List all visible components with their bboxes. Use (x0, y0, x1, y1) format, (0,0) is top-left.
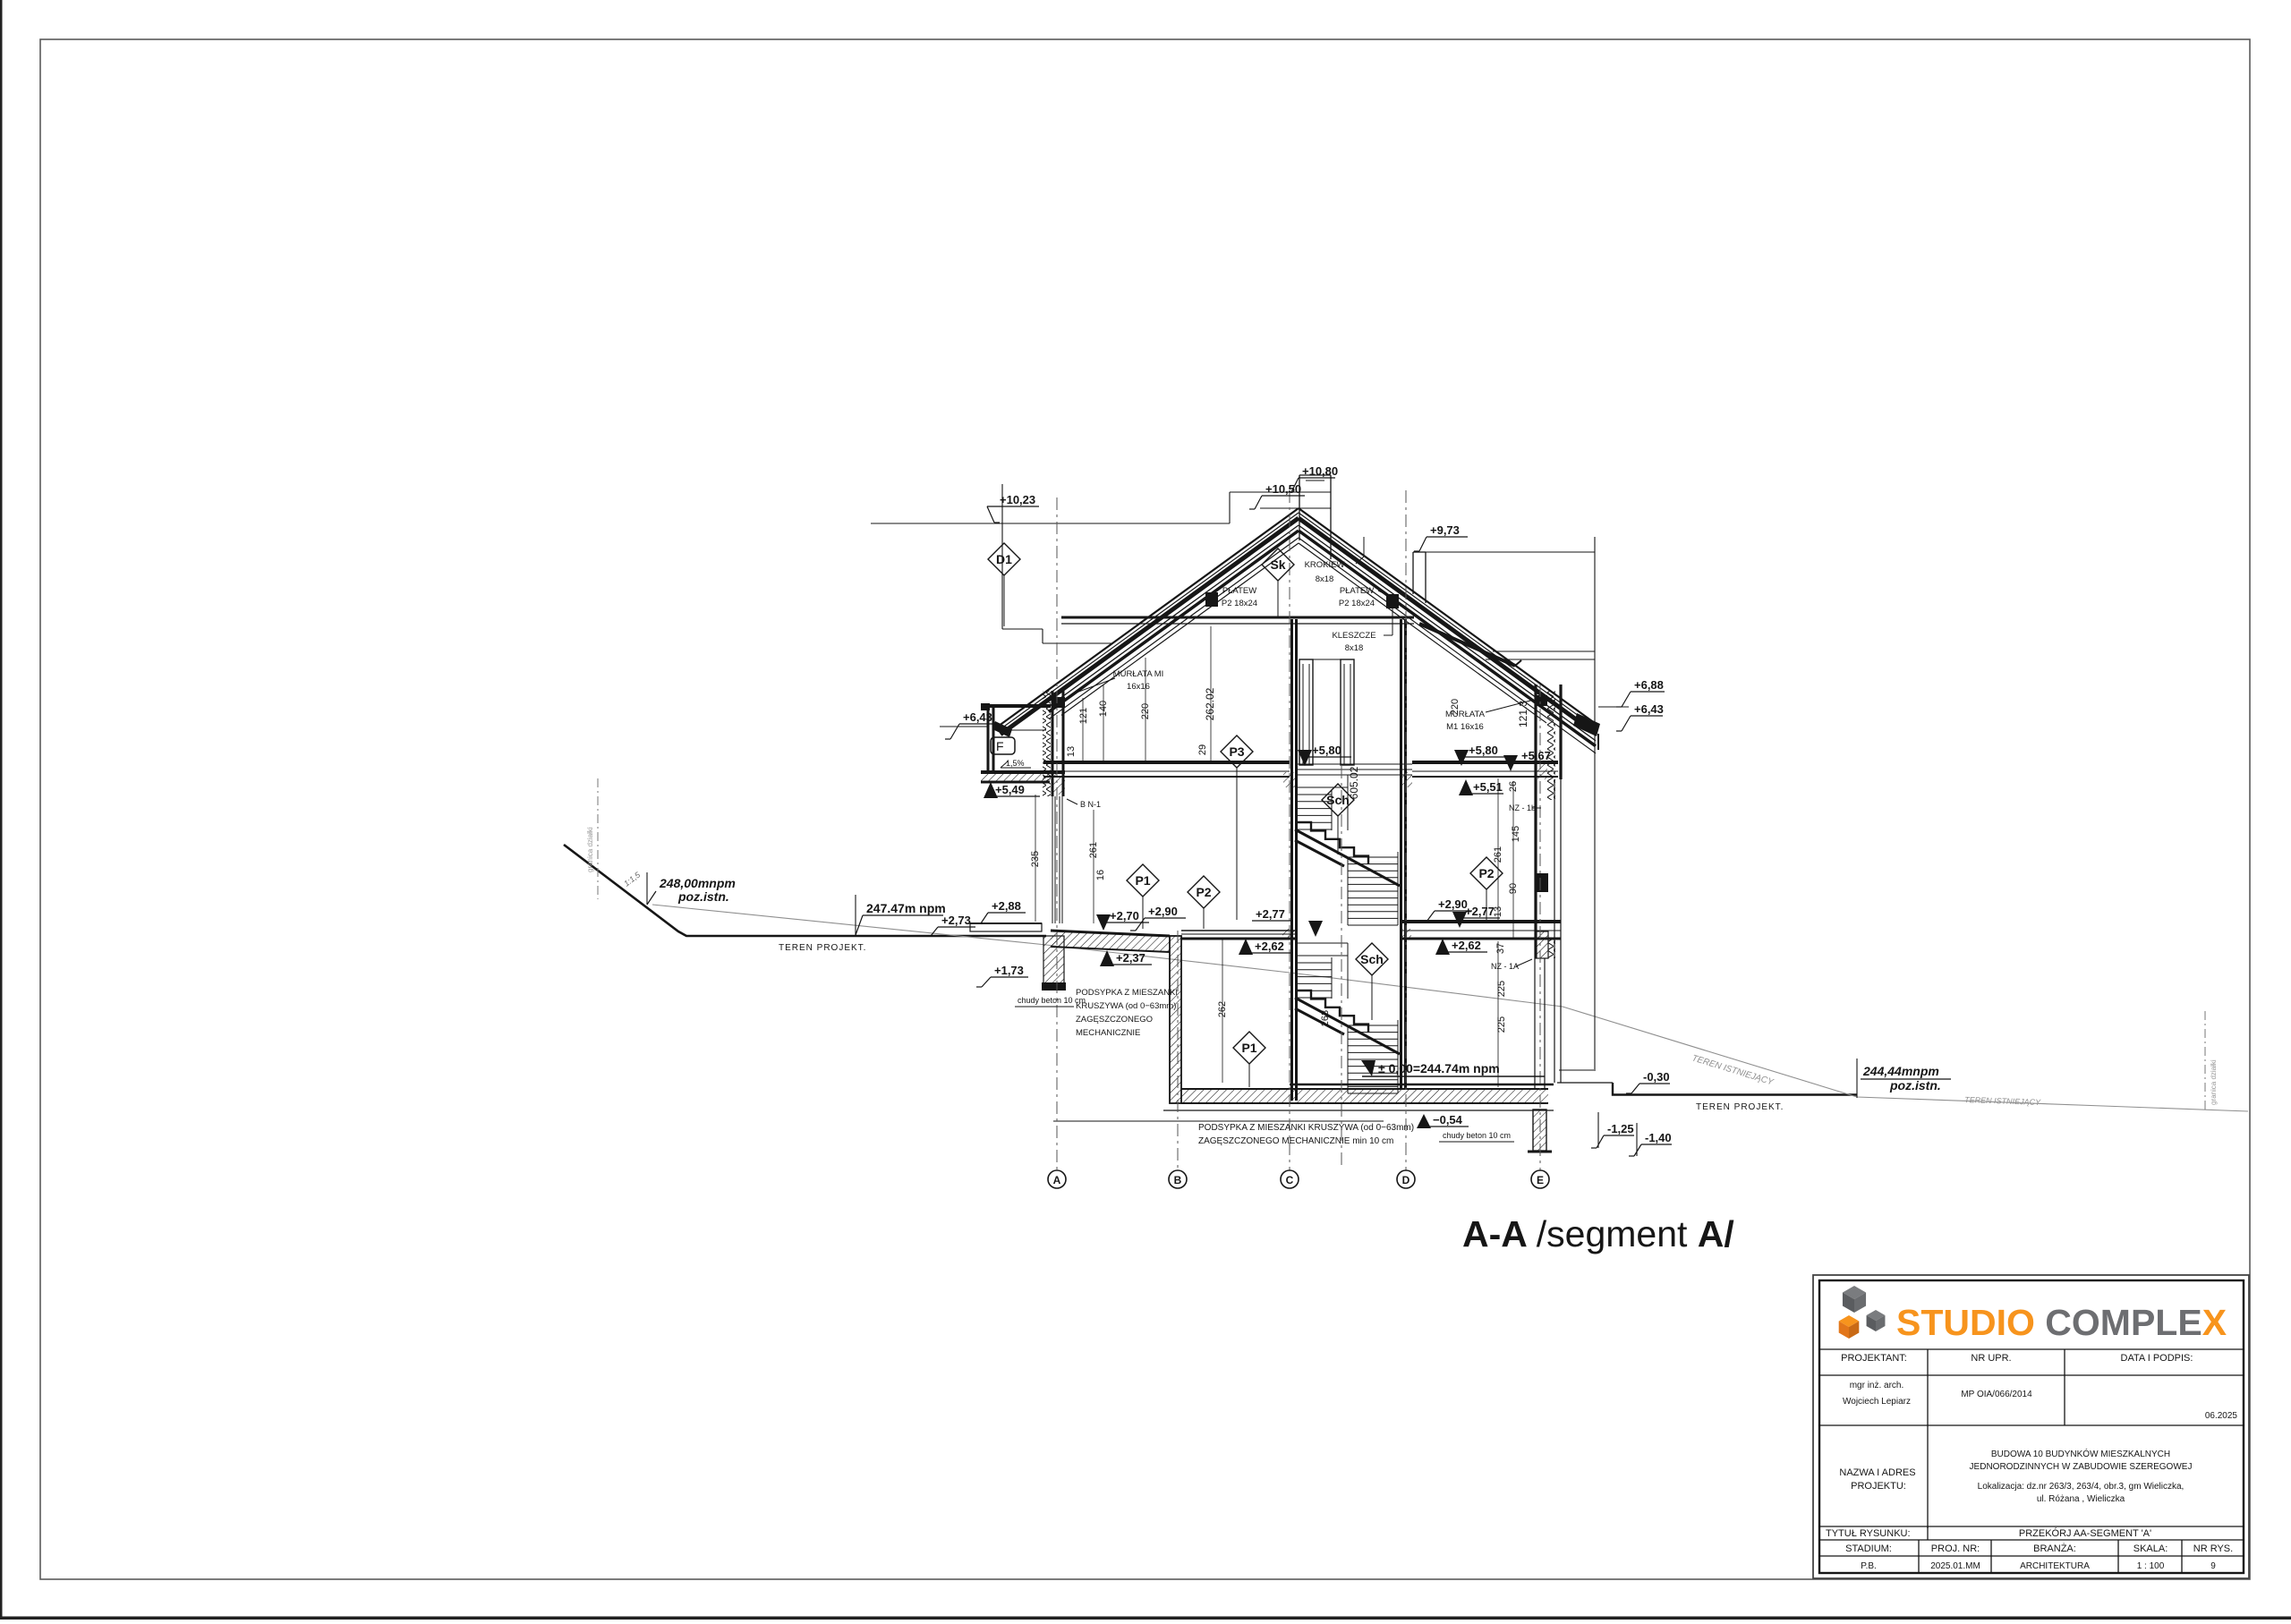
svg-text:ZAGĘSZCZONEGO MECHANICZNIE min: ZAGĘSZCZONEGO MECHANICZNIE min 10 cm (1198, 1136, 1393, 1146)
svg-text:NAZWA I ADRES: NAZWA I ADRES (1839, 1467, 1915, 1478)
svg-text:Sch: Sch (1326, 793, 1350, 807)
svg-text:+2,90: +2,90 (1148, 905, 1178, 918)
svg-text:P2: P2 (1196, 885, 1211, 899)
svg-text:MECHANICZNIE: MECHANICZNIE (1076, 1028, 1140, 1038)
svg-text:+2,77: +2,77 (1256, 907, 1285, 921)
svg-text:+2,73: +2,73 (941, 914, 971, 927)
svg-text:-1,25: -1,25 (1607, 1122, 1634, 1135)
svg-text:244,44mnpm: 244,44mnpm (1862, 1064, 1939, 1078)
svg-text:+5,67: +5,67 (1521, 749, 1551, 762)
svg-text:PŁATEW: PŁATEW (1222, 586, 1256, 596)
svg-text:-1,40: -1,40 (1645, 1131, 1672, 1144)
svg-text:121: 121 (1078, 708, 1089, 724)
svg-text:± 0,00=244.74m npm: ± 0,00=244.74m npm (1378, 1061, 1500, 1076)
svg-text:13: 13 (1066, 746, 1077, 757)
svg-text:P2 18x24: P2 18x24 (1339, 599, 1375, 608)
svg-text:145: 145 (1511, 826, 1521, 842)
svg-text:P.B.: P.B. (1861, 1561, 1877, 1571)
svg-text:−0,54: −0,54 (1433, 1113, 1463, 1127)
svg-text:P2 18x24: P2 18x24 (1222, 599, 1257, 608)
svg-text:P3: P3 (1229, 744, 1244, 759)
svg-text:A: A (1053, 1174, 1061, 1186)
svg-text:JEDNORODZINNYCH W ZABUDOWIE SZ: JEDNORODZINNYCH W ZABUDOWIE SZEREGOWEJ (1970, 1462, 2193, 1472)
svg-text:+2,70: +2,70 (1110, 909, 1139, 923)
svg-text:8x18: 8x18 (1345, 643, 1364, 653)
svg-text:ARCHITEKTURA: ARCHITEKTURA (2020, 1561, 2090, 1571)
svg-text:+6,43: +6,43 (1634, 702, 1664, 716)
svg-text:P1: P1 (1241, 1041, 1256, 1055)
svg-text:PŁATEW: PŁATEW (1340, 586, 1374, 596)
svg-text:PODSYPKA Z MIESZANKI KRUSZYWA: PODSYPKA Z MIESZANKI KRUSZYWA (od 0−63mm… (1198, 1123, 1414, 1133)
svg-text:+2,77: +2,77 (1465, 905, 1495, 918)
svg-text:KROKIEW: KROKIEW (1305, 560, 1345, 570)
svg-text:9: 9 (2210, 1561, 2216, 1571)
svg-text:ZAGĘSZCZONEGO: ZAGĘSZCZONEGO (1076, 1015, 1153, 1025)
svg-text:NR RYS.: NR RYS. (2193, 1543, 2233, 1554)
svg-text:C: C (1286, 1174, 1294, 1186)
svg-text:BUDOWA 10 BUDYNKÓW MIESZKALNYC: BUDOWA 10 BUDYNKÓW MIESZKALNYCH (1991, 1448, 2170, 1459)
svg-text:SKALA:: SKALA: (2133, 1543, 2168, 1554)
svg-text:1,5%: 1,5% (1006, 759, 1025, 768)
svg-text:KRUSZYWA (od 0−63mm): KRUSZYWA (od 0−63mm) (1076, 1001, 1176, 1011)
svg-text:-0,30: -0,30 (1643, 1070, 1670, 1084)
svg-text:PROJEKTU:: PROJEKTU: (1851, 1481, 1906, 1492)
svg-text:PODSYPKA Z MIESZANKI: PODSYPKA Z MIESZANKI (1076, 988, 1178, 998)
svg-text:263: 263 (1320, 1010, 1331, 1026)
svg-text:+2,62: +2,62 (1452, 939, 1481, 952)
svg-text:A-A /segment A/: A-A /segment A/ (1462, 1213, 1734, 1254)
svg-text:PROJEKTANT:: PROJEKTANT: (1841, 1353, 1907, 1364)
svg-text:+2,37: +2,37 (1116, 951, 1145, 965)
svg-text:+2,88: +2,88 (992, 899, 1021, 913)
svg-text:121.3: 121.3 (1517, 701, 1529, 727)
svg-text:8x18: 8x18 (1316, 574, 1334, 584)
svg-text:2025.01.MM: 2025.01.MM (1930, 1561, 1980, 1571)
svg-text:+10,23: +10,23 (1000, 493, 1035, 506)
svg-text:KLESZCZE: KLESZCZE (1332, 631, 1375, 641)
svg-text:+6,88: +6,88 (1634, 678, 1664, 692)
svg-text:poz.istn.: poz.istn. (1889, 1078, 1941, 1093)
svg-text:248,00mnpm: 248,00mnpm (659, 876, 736, 890)
svg-text:MP OIA/066/2014: MP OIA/066/2014 (1961, 1390, 2032, 1399)
svg-text:16x16: 16x16 (1127, 682, 1150, 692)
svg-text:37: 37 (1495, 943, 1506, 954)
svg-text:+9,73: +9,73 (1430, 523, 1460, 537)
svg-text:P2: P2 (1478, 866, 1494, 880)
svg-text:E: E (1537, 1174, 1544, 1186)
svg-text:+2,90: +2,90 (1438, 897, 1468, 911)
svg-text:+5,80: +5,80 (1469, 744, 1498, 757)
svg-text:605.02: 605.02 (1348, 766, 1360, 799)
svg-text:F: F (996, 739, 1004, 753)
svg-text:29: 29 (1197, 744, 1208, 755)
svg-text:Sch: Sch (1360, 952, 1384, 966)
svg-text:P1: P1 (1135, 873, 1150, 888)
svg-text:DATA I PODPIS:: DATA I PODPIS: (2121, 1353, 2193, 1364)
svg-text:M1 16x16: M1 16x16 (1446, 722, 1484, 732)
svg-text:BRANŻA:: BRANŻA: (2033, 1543, 2076, 1554)
svg-text:+2,62: +2,62 (1255, 940, 1284, 953)
svg-text:TYTUŁ RYSUNKU:: TYTUŁ RYSUNKU: (1826, 1528, 1911, 1539)
svg-text:mgr inż. arch.: mgr inż. arch. (1850, 1381, 1904, 1390)
svg-text:Sk: Sk (1270, 557, 1285, 572)
svg-text:+5,49: +5,49 (995, 783, 1025, 796)
svg-text:1 : 100: 1 : 100 (2137, 1561, 2165, 1571)
svg-text:Wojciech Lepiarz: Wojciech Lepiarz (1843, 1397, 1911, 1407)
svg-text:+10,80: +10,80 (1302, 464, 1338, 478)
svg-text:STADIUM:: STADIUM: (1845, 1543, 1892, 1554)
svg-text:06.2025: 06.2025 (2205, 1411, 2238, 1421)
svg-text:+10,50: +10,50 (1265, 482, 1301, 496)
svg-text:+5,80: +5,80 (1312, 744, 1341, 757)
svg-text:B: B (1174, 1174, 1182, 1186)
svg-text:TEREN PROJEKT.: TEREN PROJEKT. (779, 943, 866, 953)
svg-text:NR UPR.: NR UPR. (1971, 1353, 2011, 1364)
svg-text:D: D (1402, 1174, 1410, 1186)
svg-text:247.47m npm: 247.47m npm (866, 901, 946, 915)
svg-text:granica działki: granica działki (2210, 1059, 2218, 1105)
svg-text:ul. Różana , Wieliczka: ul. Różana , Wieliczka (2037, 1494, 2125, 1504)
svg-text:220: 220 (1450, 699, 1461, 715)
svg-text:NZ - 1b: NZ - 1b (1509, 803, 1536, 812)
svg-text:chudy beton 10 cm: chudy beton 10 cm (1443, 1131, 1511, 1140)
svg-text:PRZEKÓRJ AA-SEGMENT 'A': PRZEKÓRJ AA-SEGMENT 'A' (2019, 1527, 2151, 1539)
svg-text:poz.istn.: poz.istn. (677, 889, 729, 904)
svg-text:PROJ. NR:: PROJ. NR: (1931, 1543, 1980, 1554)
svg-text:STUDIO COMPLEX: STUDIO COMPLEX (1896, 1302, 2227, 1343)
svg-text:Lokalizacja: dz.nr 263/3, 263/: Lokalizacja: dz.nr 263/3, 263/4, obr.3, … (1978, 1482, 2185, 1492)
svg-text:MURŁATA MI: MURŁATA MI (1113, 669, 1164, 679)
svg-text:D1: D1 (996, 552, 1012, 566)
svg-text:TEREN PROJEKT.: TEREN PROJEKT. (1696, 1102, 1784, 1112)
svg-text:+6,43: +6,43 (963, 710, 992, 724)
svg-text:B N-1: B N-1 (1080, 800, 1101, 809)
svg-text:262.02: 262.02 (1204, 687, 1216, 720)
svg-text:granica działki: granica działki (586, 827, 594, 872)
svg-text:16: 16 (1095, 870, 1106, 880)
svg-text:+1,73: +1,73 (994, 964, 1024, 977)
svg-text:NZ - 1A: NZ - 1A (1491, 962, 1519, 971)
